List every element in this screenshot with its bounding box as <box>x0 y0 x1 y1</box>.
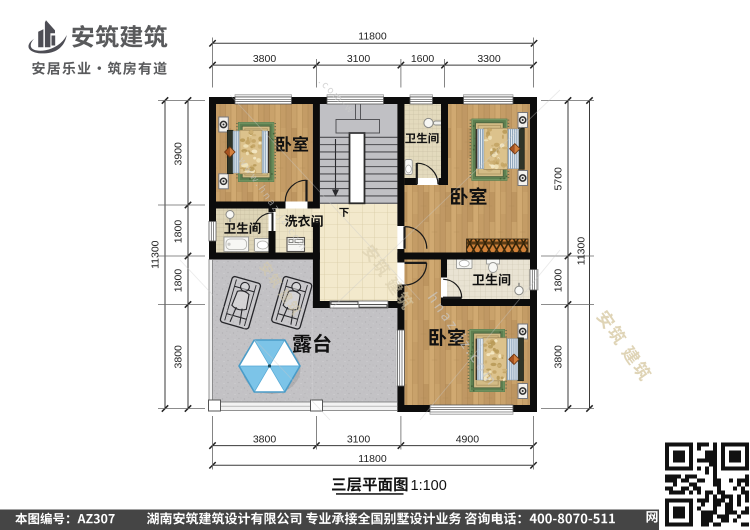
svg-text:1600: 1600 <box>411 53 435 65</box>
svg-text:3100: 3100 <box>347 433 371 445</box>
svg-text:11800: 11800 <box>358 453 387 465</box>
svg-text:3800: 3800 <box>253 53 277 65</box>
svg-text:5700: 5700 <box>553 167 565 191</box>
svg-text:1800: 1800 <box>173 269 185 293</box>
svg-text:3800: 3800 <box>173 345 185 369</box>
svg-text:3900: 3900 <box>173 142 185 166</box>
svg-text:1:100: 1:100 <box>411 478 447 494</box>
svg-text:11800: 11800 <box>358 31 387 43</box>
svg-text:11300: 11300 <box>150 240 162 269</box>
svg-text:3100: 3100 <box>347 53 371 65</box>
svg-text:11300: 11300 <box>576 237 588 266</box>
svg-text:1800: 1800 <box>553 269 565 293</box>
svg-text:1800: 1800 <box>173 220 185 244</box>
svg-text:3800: 3800 <box>253 433 277 445</box>
svg-text:3300: 3300 <box>477 53 501 65</box>
svg-text:3800: 3800 <box>553 345 565 369</box>
svg-text:4900: 4900 <box>456 433 480 445</box>
